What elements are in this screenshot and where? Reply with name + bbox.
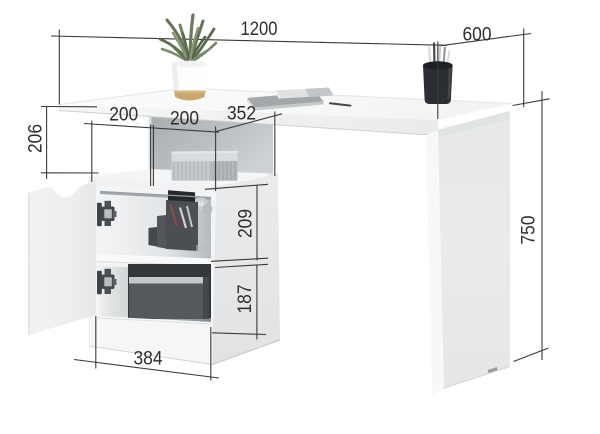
- svg-text:600: 600: [463, 25, 492, 46]
- svg-text:200: 200: [170, 109, 199, 130]
- svg-text:384: 384: [134, 349, 163, 370]
- svg-text:750: 750: [519, 216, 540, 245]
- svg-text:187: 187: [235, 285, 256, 314]
- svg-text:206: 206: [26, 124, 47, 153]
- svg-text:1200: 1200: [241, 19, 278, 40]
- svg-text:200: 200: [109, 105, 138, 126]
- svg-text:209: 209: [236, 209, 257, 238]
- svg-text:352: 352: [227, 104, 256, 125]
